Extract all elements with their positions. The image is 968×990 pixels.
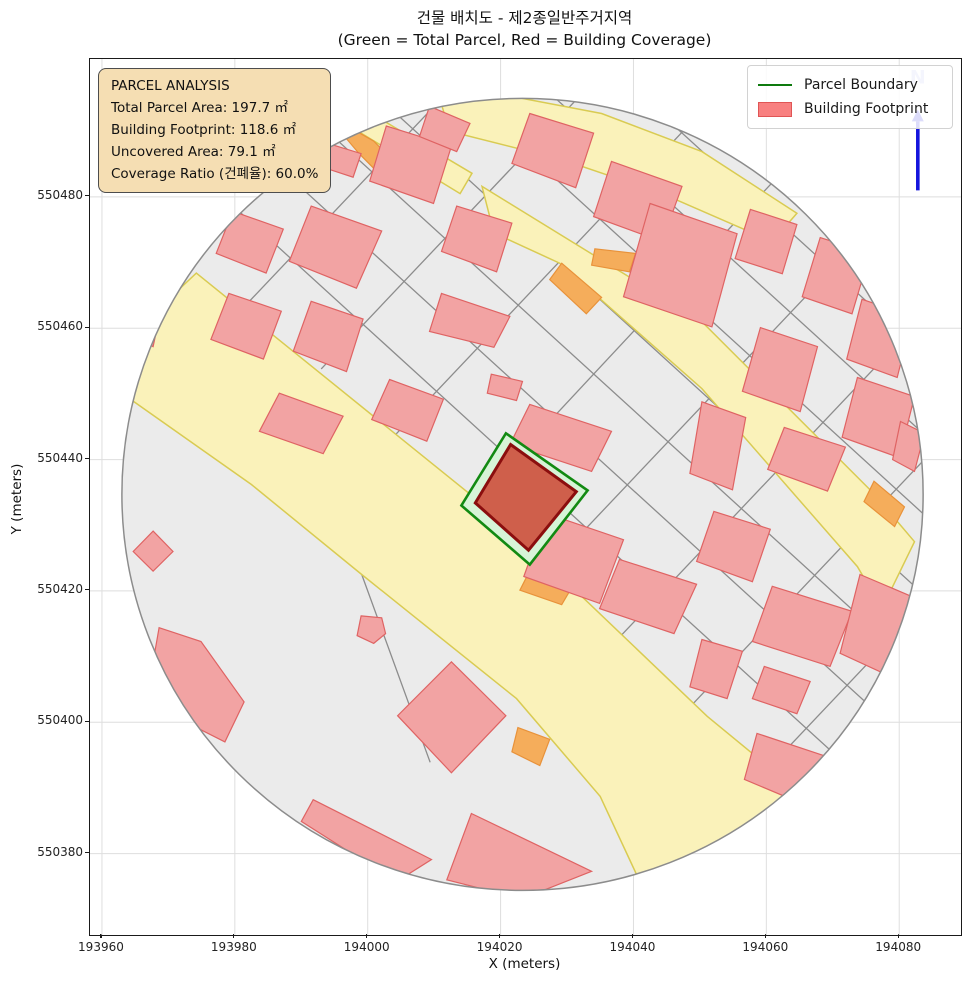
y-tick-label: 550440 <box>21 451 83 465</box>
chart-title: 건물 배치도 - 제2종일반주거지역 <box>89 7 960 29</box>
y-axis-label: Y (meters) <box>9 464 25 535</box>
legend-line-swatch <box>758 84 792 86</box>
parcel-analysis-line: Coverage Ratio (건폐율): 60.0% <box>111 163 318 185</box>
y-tick-mark <box>85 458 89 459</box>
x-tick-label: 193960 <box>66 940 136 954</box>
y-tick-mark <box>85 195 89 196</box>
legend-item-building-footprint: Building Footprint <box>758 97 942 121</box>
y-tick-label: 550380 <box>21 845 83 859</box>
y-tick-label: 550460 <box>21 319 83 333</box>
parcel-analysis-heading: PARCEL ANALYSIS <box>111 75 318 97</box>
x-tick-label: 194040 <box>597 940 667 954</box>
y-tick-label: 550420 <box>21 582 83 596</box>
parcel-analysis-box: PARCEL ANALYSIS Total Parcel Area: 197.7… <box>98 68 331 193</box>
legend-label: Parcel Boundary <box>804 77 918 93</box>
x-tick-label: 194020 <box>465 940 535 954</box>
chart-subtitle: (Green = Total Parcel, Red = Building Co… <box>89 29 960 51</box>
y-tick-mark <box>85 852 89 853</box>
figure: 건물 배치도 - 제2종일반주거지역 (Green = Total Parcel… <box>0 0 968 990</box>
y-tick-mark <box>85 721 89 722</box>
legend-label: Building Footprint <box>804 101 928 117</box>
x-tick-label: 194060 <box>730 940 800 954</box>
legend: Parcel Boundary Building Footprint <box>747 65 953 129</box>
parcel-analysis-line: Uncovered Area: 79.1 ㎡ <box>111 141 318 163</box>
y-tick-mark <box>85 589 89 590</box>
y-tick-label: 550480 <box>21 188 83 202</box>
plot-area[interactable]: N PARCEL ANALYSIS Total Parcel Area: 197… <box>89 58 962 936</box>
x-tick-label: 193980 <box>199 940 269 954</box>
parcel-analysis-line: Building Footprint: 118.6 ㎡ <box>111 119 318 141</box>
chart-title-block: 건물 배치도 - 제2종일반주거지역 (Green = Total Parcel… <box>89 7 960 51</box>
x-axis-label: X (meters) <box>89 956 960 972</box>
x-tick-label: 194080 <box>863 940 933 954</box>
legend-item-parcel-boundary: Parcel Boundary <box>758 73 942 97</box>
parcel-analysis-line: Total Parcel Area: 197.7 ㎡ <box>111 97 318 119</box>
y-tick-mark <box>85 327 89 328</box>
x-tick-label: 194000 <box>332 940 402 954</box>
y-tick-label: 550400 <box>21 713 83 727</box>
legend-patch-swatch <box>758 102 792 117</box>
